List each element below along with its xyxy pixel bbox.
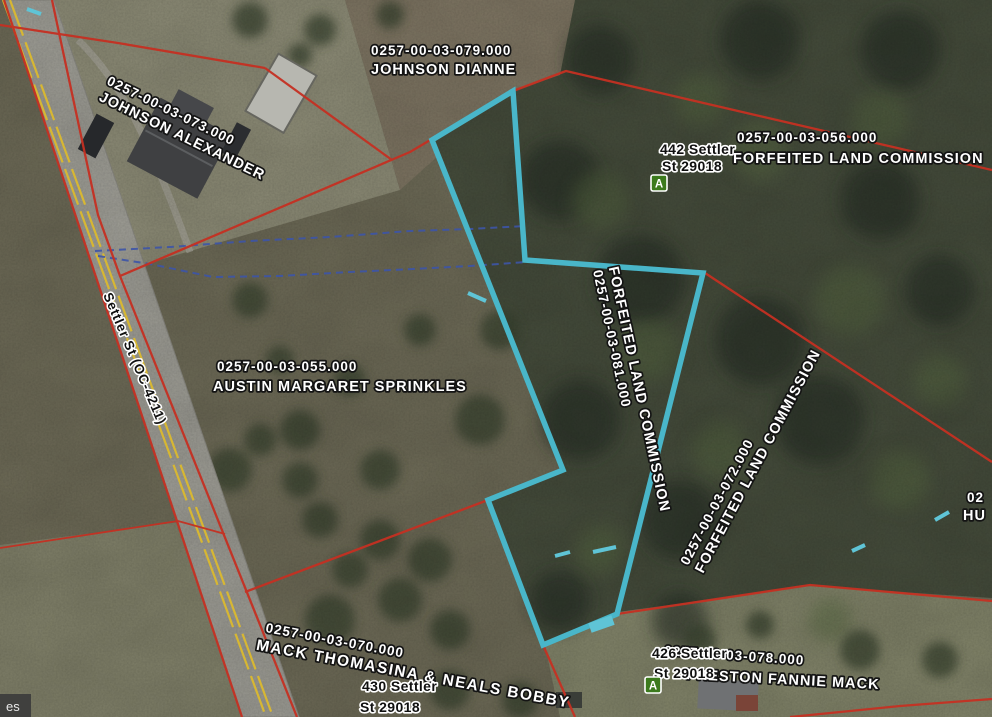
parcel-id: 0257-00-03-079.000 — [371, 43, 511, 58]
attribution: es — [0, 694, 31, 717]
address-line1: 426 Settler — [652, 645, 727, 661]
parcel-owner: FORFEITED LAND COMMISSION — [733, 151, 984, 167]
address-line1: 442 Settler — [660, 141, 735, 157]
address-line2: St 29018 — [662, 158, 722, 174]
address-marker-442[interactable]: A — [651, 175, 667, 191]
parcel-owner: JOHNSON DIANNE — [371, 62, 516, 78]
address-marker-426[interactable]: A — [645, 677, 661, 693]
parcel-owner: AUSTIN MARGARET SPRINKLES — [213, 379, 467, 395]
parcel-owner: HU — [963, 508, 986, 524]
marker-letter: A — [649, 681, 657, 693]
parcel-id: 0257-00-03-056.000 — [737, 130, 877, 145]
address-line2: St 29018 — [360, 699, 420, 715]
marker-letter: A — [655, 179, 663, 191]
address-line2: St 29018 — [654, 665, 714, 681]
map-viewport[interactable]: 0257-00-03-079.000 JOHNSON DIANNE 0257-0… — [0, 0, 992, 717]
parcel-id: 02 — [967, 490, 984, 505]
parcel-id: 0257-00-03-055.000 — [217, 359, 357, 374]
attribution-text: es — [6, 699, 20, 714]
address-line1: 430 Settler — [362, 678, 437, 694]
map-canvas[interactable]: 0257-00-03-079.000 JOHNSON DIANNE 0257-0… — [0, 0, 992, 717]
